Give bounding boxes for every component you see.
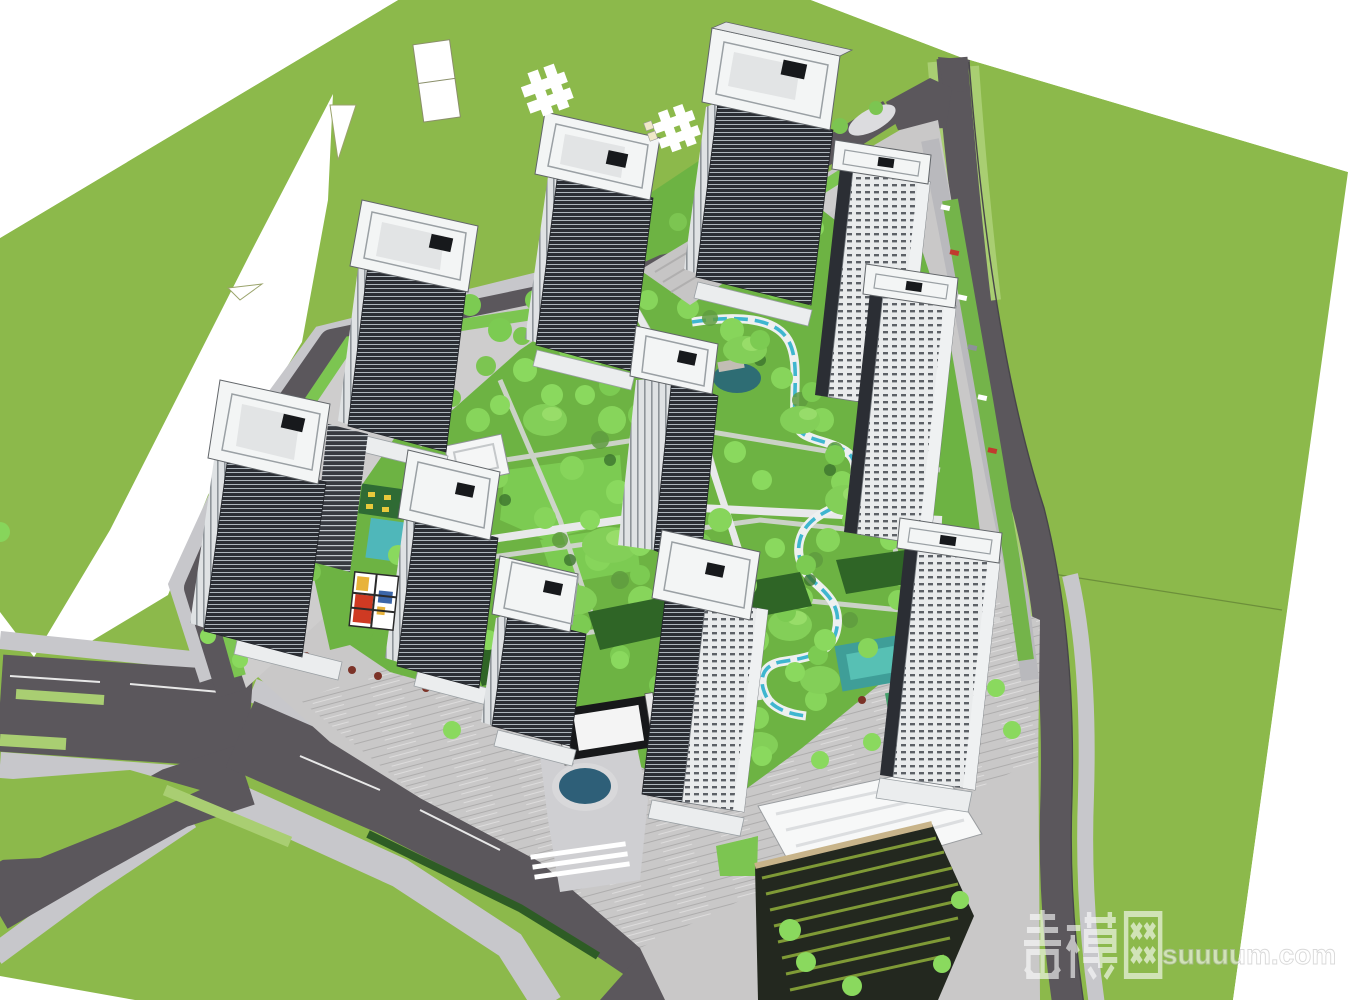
svg-text:suuuum.com: suuuum.com <box>1162 939 1336 970</box>
